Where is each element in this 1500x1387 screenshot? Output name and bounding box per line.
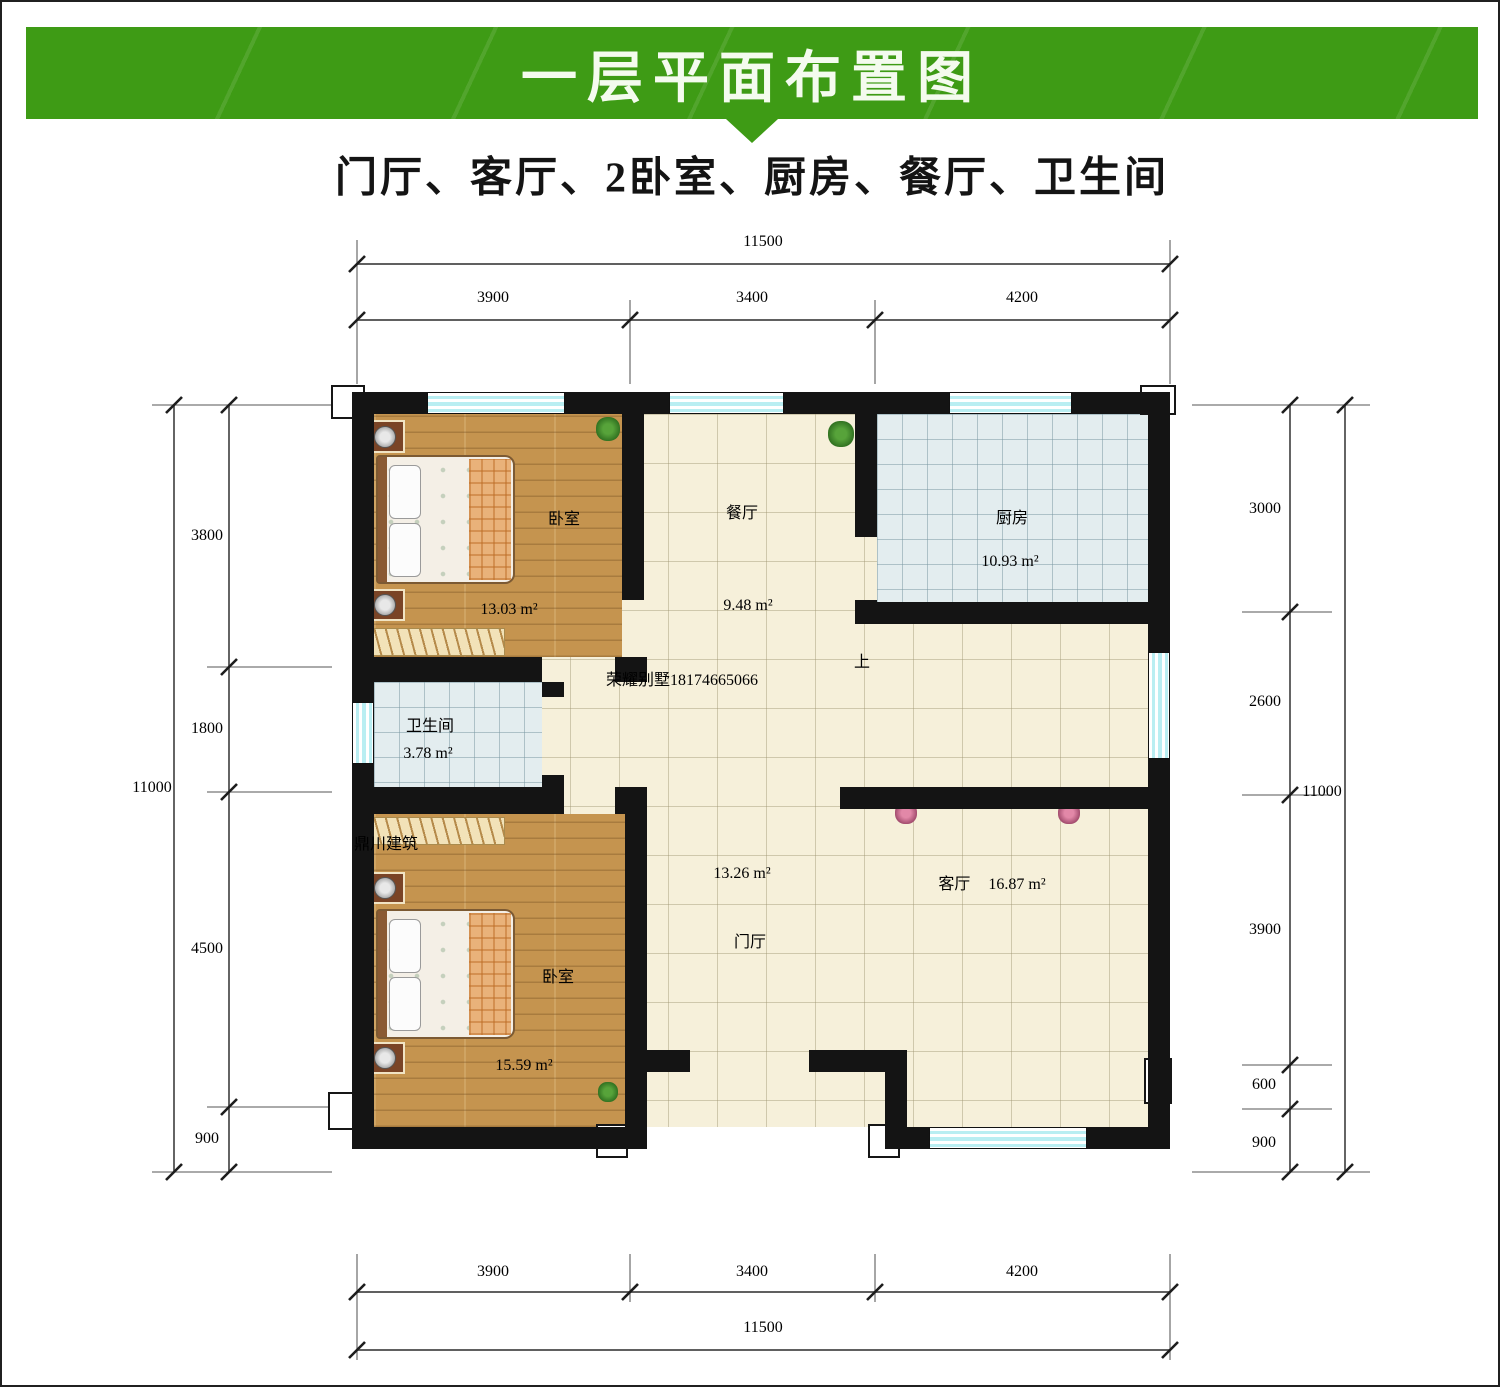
shoe-cabinet (737, 789, 840, 807)
dining-chair (725, 559, 759, 583)
porch-step (649, 1186, 845, 1211)
dim-left-seg1: 3800 (191, 527, 223, 545)
room-label-dining: 餐厅 (726, 499, 758, 523)
window (929, 1127, 1087, 1149)
dim-right-seg1: 3000 (1249, 500, 1281, 518)
living-name: 客厅 (938, 876, 970, 893)
stairs-up-label: 上 (854, 648, 870, 672)
dim-right-overall: 11000 (1302, 783, 1341, 801)
room-area-kitchen: 10.93 m² (981, 553, 1038, 571)
room-area-foyer: 13.26 m² (713, 865, 770, 883)
armchair (898, 987, 950, 1049)
dining-chair (685, 462, 711, 496)
wall (542, 682, 564, 697)
room-list-subtitle: 门厅、客厅、2卧室、厨房、餐厅、卫生间 (335, 144, 1169, 205)
dim-top-seg3: 4200 (1006, 289, 1038, 307)
page-title: 一层平面布置图 (521, 33, 983, 114)
watermark-phone: 荣耀别墅18174665066 (606, 666, 758, 690)
wall (542, 775, 564, 787)
room-label-kitchen: 厨房 (996, 504, 1028, 528)
porch-column (848, 1154, 882, 1186)
wall (622, 392, 644, 600)
stove (1098, 488, 1142, 548)
bed-headboard (378, 911, 387, 1037)
plant-icon (828, 421, 854, 447)
dining-chair (725, 429, 759, 453)
window (1148, 652, 1170, 759)
wall (1148, 392, 1170, 1149)
window (949, 392, 1072, 414)
side-table (1084, 1058, 1130, 1102)
window (352, 702, 374, 764)
bathroom-sink (496, 680, 536, 708)
wardrobe (370, 628, 505, 656)
ac-unit (962, 768, 1008, 786)
wall (647, 1050, 690, 1072)
dim-left-overall: 11000 (132, 779, 171, 797)
dim-top-seg1: 3900 (477, 289, 509, 307)
dim-bottom-overall: 11500 (743, 1319, 782, 1337)
room-label-bedroom-bottom: 卧室 (542, 963, 574, 987)
wall (625, 787, 647, 1149)
tv (588, 952, 604, 1002)
pillow (389, 465, 421, 519)
dim-top-seg2: 3400 (736, 289, 768, 307)
watermark-faint: 鼎川建筑 (354, 830, 418, 854)
dim-right-seg3: 3900 (1249, 921, 1281, 939)
pillow (389, 523, 421, 577)
dim-bottom-seg3: 4200 (1006, 1263, 1038, 1281)
person-figure (1008, 1042, 1040, 1104)
pillow (389, 919, 421, 973)
refrigerator (875, 415, 924, 464)
bed (376, 455, 515, 584)
living-area: 16.87 m² (988, 876, 1045, 893)
dining-chair (773, 462, 799, 496)
title-banner: 一层平面布置图 (26, 27, 1478, 119)
wall (352, 1127, 647, 1149)
wall (840, 787, 1148, 809)
wall (352, 392, 374, 1149)
room-area-bathroom: 3.78 m² (403, 745, 452, 763)
porch-column (612, 1154, 646, 1186)
dim-left-seg4: 900 (195, 1130, 219, 1148)
bay-window (420, 1149, 570, 1189)
dim-bottom-seg2: 3400 (736, 1263, 768, 1281)
window (669, 392, 784, 414)
dim-left-seg3: 4500 (191, 940, 223, 958)
window (427, 392, 565, 414)
wall (352, 787, 564, 814)
room-area-bedroom-top: 13.03 m² (480, 601, 537, 619)
wall (855, 392, 877, 537)
dim-right-seg5: 900 (1252, 1134, 1276, 1152)
wall (855, 602, 1170, 624)
bed-headboard (378, 457, 387, 582)
porch-step (649, 1210, 845, 1236)
dining-chair (685, 506, 711, 540)
banner-arrow-icon (726, 119, 778, 143)
plant-icon (596, 417, 620, 441)
dim-left-seg2: 1800 (191, 720, 223, 738)
room-label-bathroom: 卫生间 (406, 712, 454, 736)
dim-top-overall: 11500 (743, 233, 782, 251)
bed-blanket (469, 913, 511, 1035)
floor-plan-page: 一层平面布置图 门厅、客厅、2卧室、厨房、餐厅、卫生间 (0, 0, 1500, 1387)
wall (885, 1050, 907, 1149)
room-label-bedroom-top: 卧室 (548, 505, 580, 529)
corner-column-mark (328, 1092, 354, 1130)
room-area-bedroom-bottom: 15.59 m² (495, 1057, 552, 1075)
coffee-table (980, 952, 1074, 1002)
dim-right-seg4: 600 (1252, 1076, 1276, 1094)
dim-bottom-seg1: 3900 (477, 1263, 509, 1281)
bed-blanket (469, 459, 511, 580)
room-label-foyer: 门厅 (734, 928, 766, 952)
room-area-dining: 9.48 m² (723, 597, 772, 615)
room-label-living: 客厅 16.87 m² (938, 870, 1045, 894)
dining-chair (773, 506, 799, 540)
wall (352, 657, 542, 682)
kitchen-sink (982, 418, 1064, 462)
plant-icon (598, 1082, 618, 1102)
dim-right-seg2: 2600 (1249, 693, 1281, 711)
pillow (389, 977, 421, 1031)
stairs (882, 624, 1024, 704)
toilet (454, 680, 480, 712)
bed (376, 909, 515, 1039)
